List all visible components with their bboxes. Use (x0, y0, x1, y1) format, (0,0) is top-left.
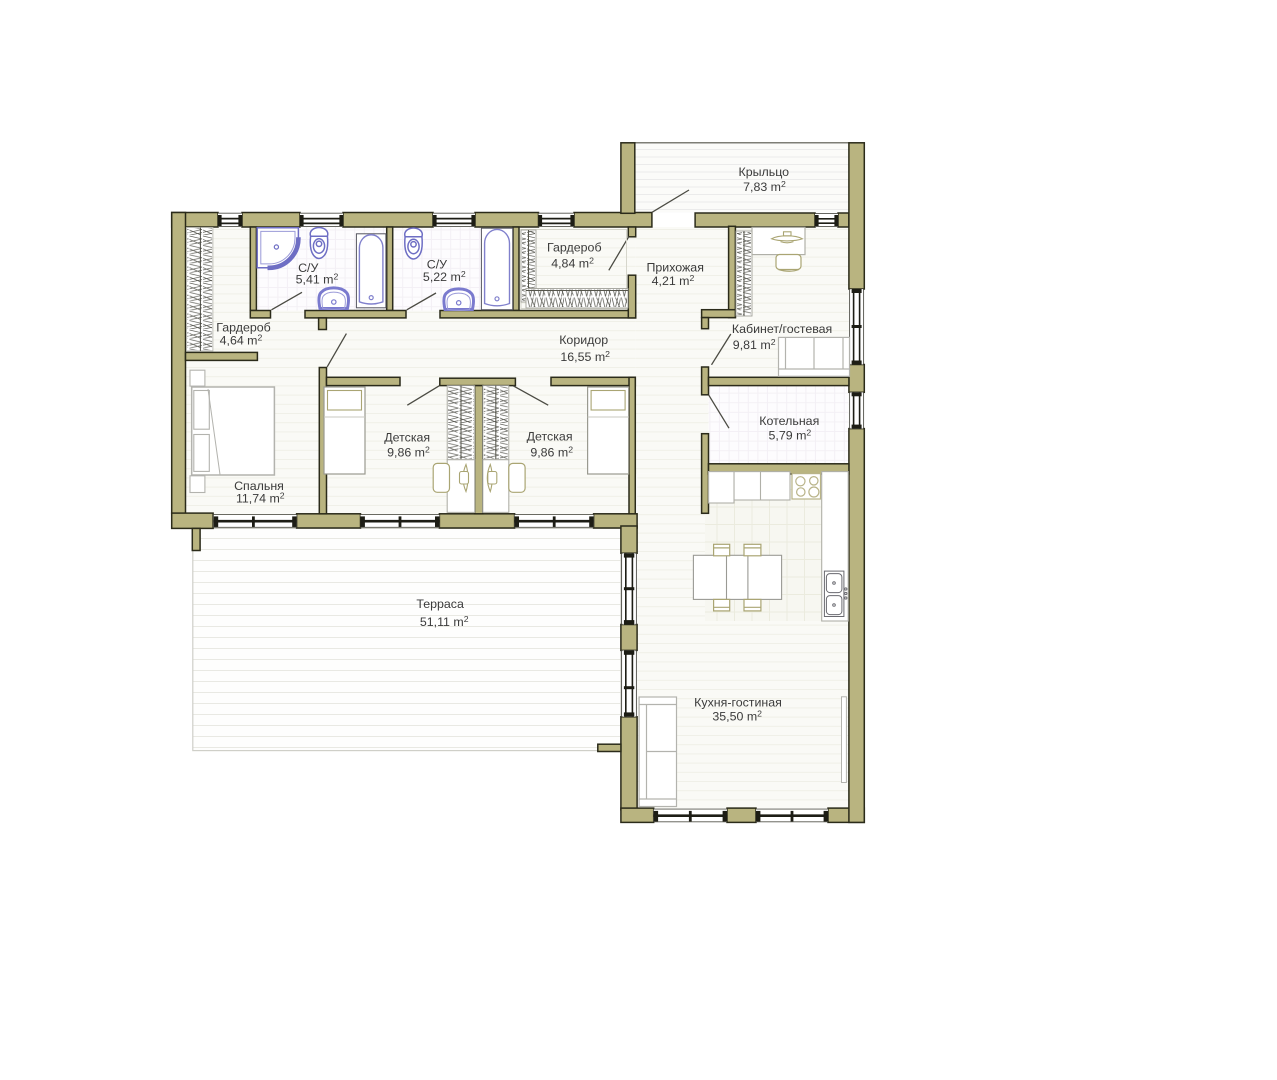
svg-text:9,81 m2: 9,81 m2 (733, 337, 776, 352)
svg-text:Терраса: Терраса (416, 597, 464, 611)
svg-text:4,64 m2: 4,64 m2 (220, 333, 263, 348)
svg-text:7,83 m2: 7,83 m2 (743, 179, 786, 194)
svg-text:9,86 m2: 9,86 m2 (530, 445, 573, 460)
svg-text:Детская: Детская (384, 431, 430, 445)
svg-text:35,50 m2: 35,50 m2 (712, 709, 762, 724)
svg-text:5,22 m2: 5,22 m2 (423, 269, 466, 284)
svg-text:Гардероб: Гардероб (216, 321, 271, 335)
svg-text:5,79 m2: 5,79 m2 (769, 428, 812, 443)
svg-text:Крыльцо: Крыльцо (739, 165, 790, 179)
svg-text:11,74 m2: 11,74 m2 (236, 491, 285, 506)
svg-text:51,11 m2: 51,11 m2 (420, 614, 469, 629)
svg-text:Кабинет/гостевая: Кабинет/гостевая (732, 322, 832, 336)
svg-text:Кухня-гостиная: Кухня-гостиная (694, 696, 782, 710)
svg-text:16,55 m2: 16,55 m2 (560, 349, 610, 364)
svg-text:Коридор: Коридор (559, 333, 608, 347)
svg-text:5,41 m2: 5,41 m2 (296, 272, 339, 287)
svg-text:9,86 m2: 9,86 m2 (387, 445, 430, 460)
svg-text:Прихожая: Прихожая (646, 261, 703, 275)
svg-text:Гардероб: Гардероб (547, 240, 602, 254)
svg-text:4,84 m2: 4,84 m2 (551, 256, 594, 271)
svg-text:Детская: Детская (527, 430, 573, 444)
svg-text:Котельная: Котельная (759, 414, 819, 428)
svg-text:4,21 m2: 4,21 m2 (652, 273, 695, 288)
